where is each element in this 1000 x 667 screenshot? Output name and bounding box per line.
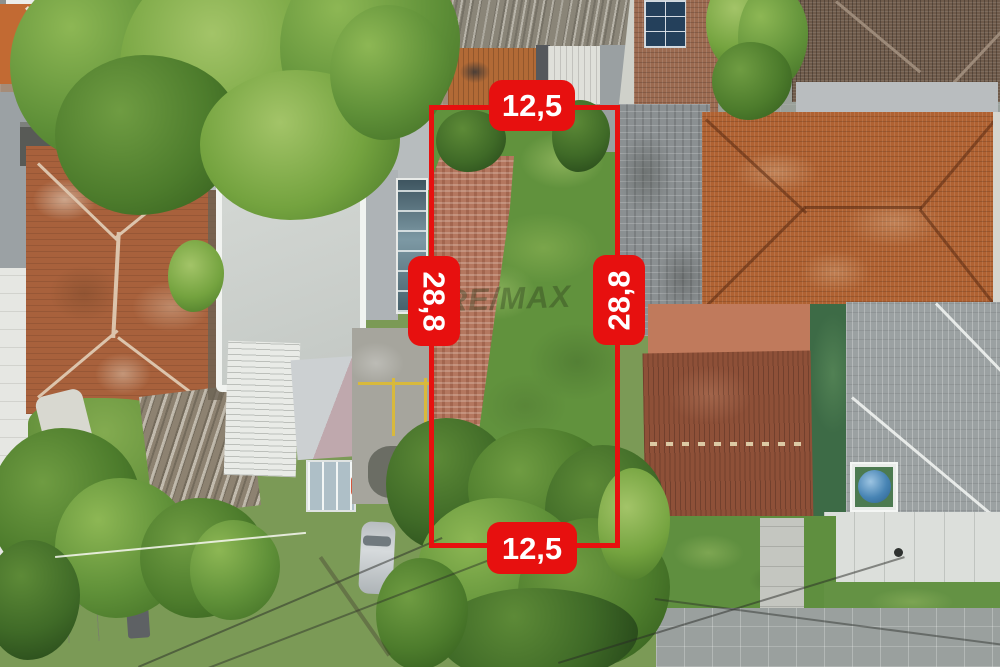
solar-panel bbox=[644, 0, 686, 48]
aerial-photo-scene: RE/MAX 12,5 12,5 28,8 28,8 bbox=[0, 0, 1000, 667]
roof-dashed-line bbox=[650, 442, 808, 446]
roof-gutter bbox=[993, 112, 1000, 312]
dimension-label-right: 28,8 bbox=[593, 255, 645, 345]
parking-line bbox=[392, 378, 395, 436]
dimension-label-bottom: 12,5 bbox=[487, 522, 577, 574]
orange-hip-roof bbox=[702, 112, 998, 312]
parking-line bbox=[358, 382, 430, 385]
roof-ridge-line bbox=[805, 206, 922, 209]
dimension-value: 28,8 bbox=[419, 271, 450, 331]
car-windshield bbox=[363, 535, 391, 546]
dimension-value: 12,5 bbox=[502, 533, 562, 564]
entrance-glass-canopy bbox=[306, 460, 356, 512]
dimension-value: 12,5 bbox=[502, 90, 562, 121]
ribbed-white-roof bbox=[224, 341, 301, 477]
dimension-label-top: 12,5 bbox=[489, 80, 575, 131]
lower-white-roof bbox=[824, 512, 1000, 590]
dimension-label-left: 28,8 bbox=[408, 256, 460, 346]
water-tank bbox=[858, 470, 891, 503]
rust-corrugated-roof bbox=[643, 351, 814, 526]
dimension-value: 28,8 bbox=[604, 270, 635, 330]
